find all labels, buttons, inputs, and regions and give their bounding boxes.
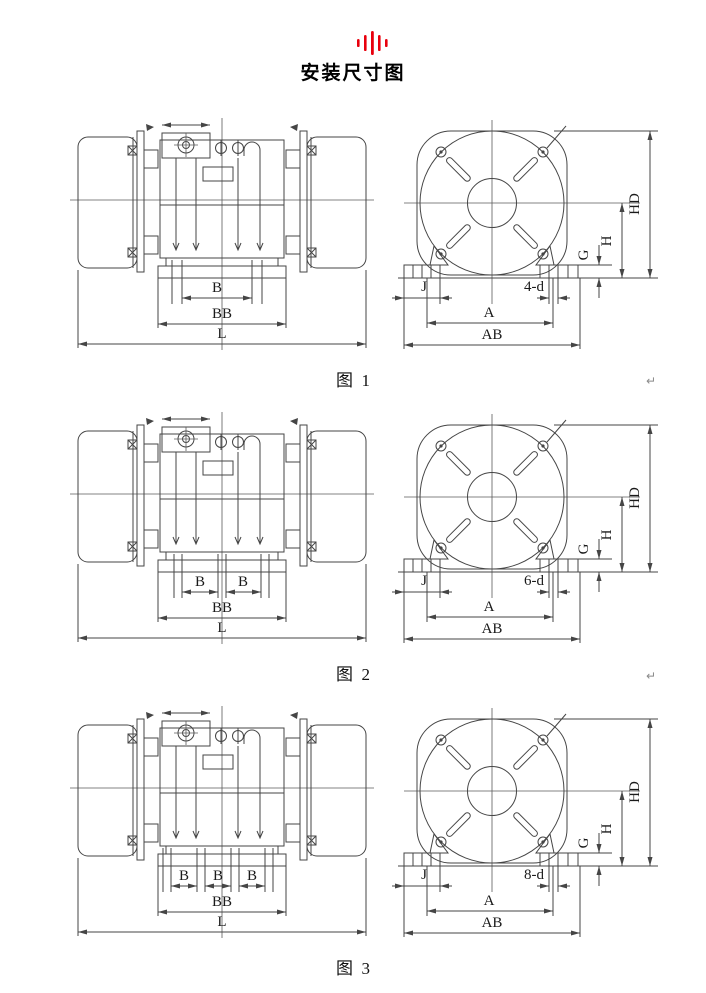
- fig1-cooling-fins: [173, 158, 263, 250]
- fig2-dim-HD: HD: [627, 487, 643, 509]
- fig1-side-view: B BB L: [70, 118, 374, 350]
- fig1-dim-B: B: [212, 280, 222, 296]
- figure-2-drawing: B B BB L: [0, 406, 706, 696]
- fig2-dim-holes: 6-d: [524, 573, 544, 589]
- fig2-dim-J: J: [421, 573, 427, 589]
- fig2-dim-A: A: [484, 599, 495, 615]
- logo-bars: [357, 31, 388, 55]
- figure-3-drawing: B B B BB L: [0, 700, 706, 990]
- fig3-dim-HD: HD: [627, 781, 643, 803]
- fig3-dim-G: G: [576, 837, 592, 848]
- fig3-dim-B1: B: [179, 868, 189, 884]
- fig3-side-view: B B B BB L: [70, 706, 374, 938]
- fig3-front-bolts: [436, 714, 566, 847]
- fig2-front-view: HD H G J 6-d: [392, 414, 658, 643]
- page-title: 安装尺寸图: [0, 58, 706, 85]
- fig2-side-view: B B BB L: [70, 412, 374, 644]
- fig2-front-feet: [398, 540, 658, 572]
- figure-2: B B BB L: [0, 406, 706, 696]
- fig1-dim-AB: AB: [482, 327, 503, 343]
- figure-1-drawing: B BB L: [0, 112, 706, 402]
- fig1-front-view: HD H G J 4-d: [392, 120, 658, 349]
- paragraph-return-mark: ↵: [646, 669, 656, 683]
- fig2-dim-B2: B: [238, 574, 248, 590]
- figure-3-caption: 图 3: [0, 954, 706, 979]
- fig3-dim-B2: B: [213, 868, 223, 884]
- fig3-dim-holes: 8-d: [524, 867, 544, 883]
- fig3-dim-AB: AB: [482, 915, 503, 931]
- fig3-front-feet: [398, 834, 658, 866]
- figure-1-caption: 图 1: [0, 366, 706, 391]
- fig3-dim-H: H: [599, 823, 615, 834]
- fig1-front-bolts: [436, 126, 566, 259]
- fig3-dim-L: L: [217, 914, 226, 930]
- fig2-cooling-fins: [173, 452, 263, 544]
- fig2-dim-G: G: [576, 543, 592, 554]
- fig2-dim-L: L: [217, 620, 226, 636]
- fig2-front-bolts: [436, 420, 566, 553]
- fig1-dim-G: G: [576, 249, 592, 260]
- figure-2-caption: 图 2: [0, 660, 706, 685]
- fig1-dim-A: A: [484, 305, 495, 321]
- fig2-dim-BB: BB: [212, 600, 232, 616]
- fig1-dim-holes: 4-d: [524, 279, 544, 295]
- fig3-cooling-fins: [173, 746, 263, 838]
- fig1-dim-BB: BB: [212, 306, 232, 322]
- fig2-dim-H: H: [599, 529, 615, 540]
- fig1-front-feet: [398, 246, 658, 278]
- fig3-dim-A: A: [484, 893, 495, 909]
- fig2-dim-B1: B: [195, 574, 205, 590]
- fig1-dim-J: J: [421, 279, 427, 295]
- fig1-dim-H: H: [599, 235, 615, 246]
- paragraph-return-mark: ↵: [646, 374, 656, 388]
- vibration-logo: [343, 26, 403, 60]
- fig1-dim-L: L: [217, 326, 226, 342]
- drawing-page: 安装尺寸图: [0, 0, 706, 993]
- fig3-dim-BB: BB: [212, 894, 232, 910]
- fig3-front-view: HD H G J 8-d: [392, 708, 658, 937]
- fig2-dim-AB: AB: [482, 621, 503, 637]
- fig3-dim-J: J: [421, 867, 427, 883]
- fig3-dim-B3: B: [247, 868, 257, 884]
- fig1-dim-HD: HD: [627, 193, 643, 215]
- figure-3: B B B BB L: [0, 700, 706, 990]
- figure-1: B BB L: [0, 112, 706, 402]
- fig2-base-holes: [174, 554, 269, 598]
